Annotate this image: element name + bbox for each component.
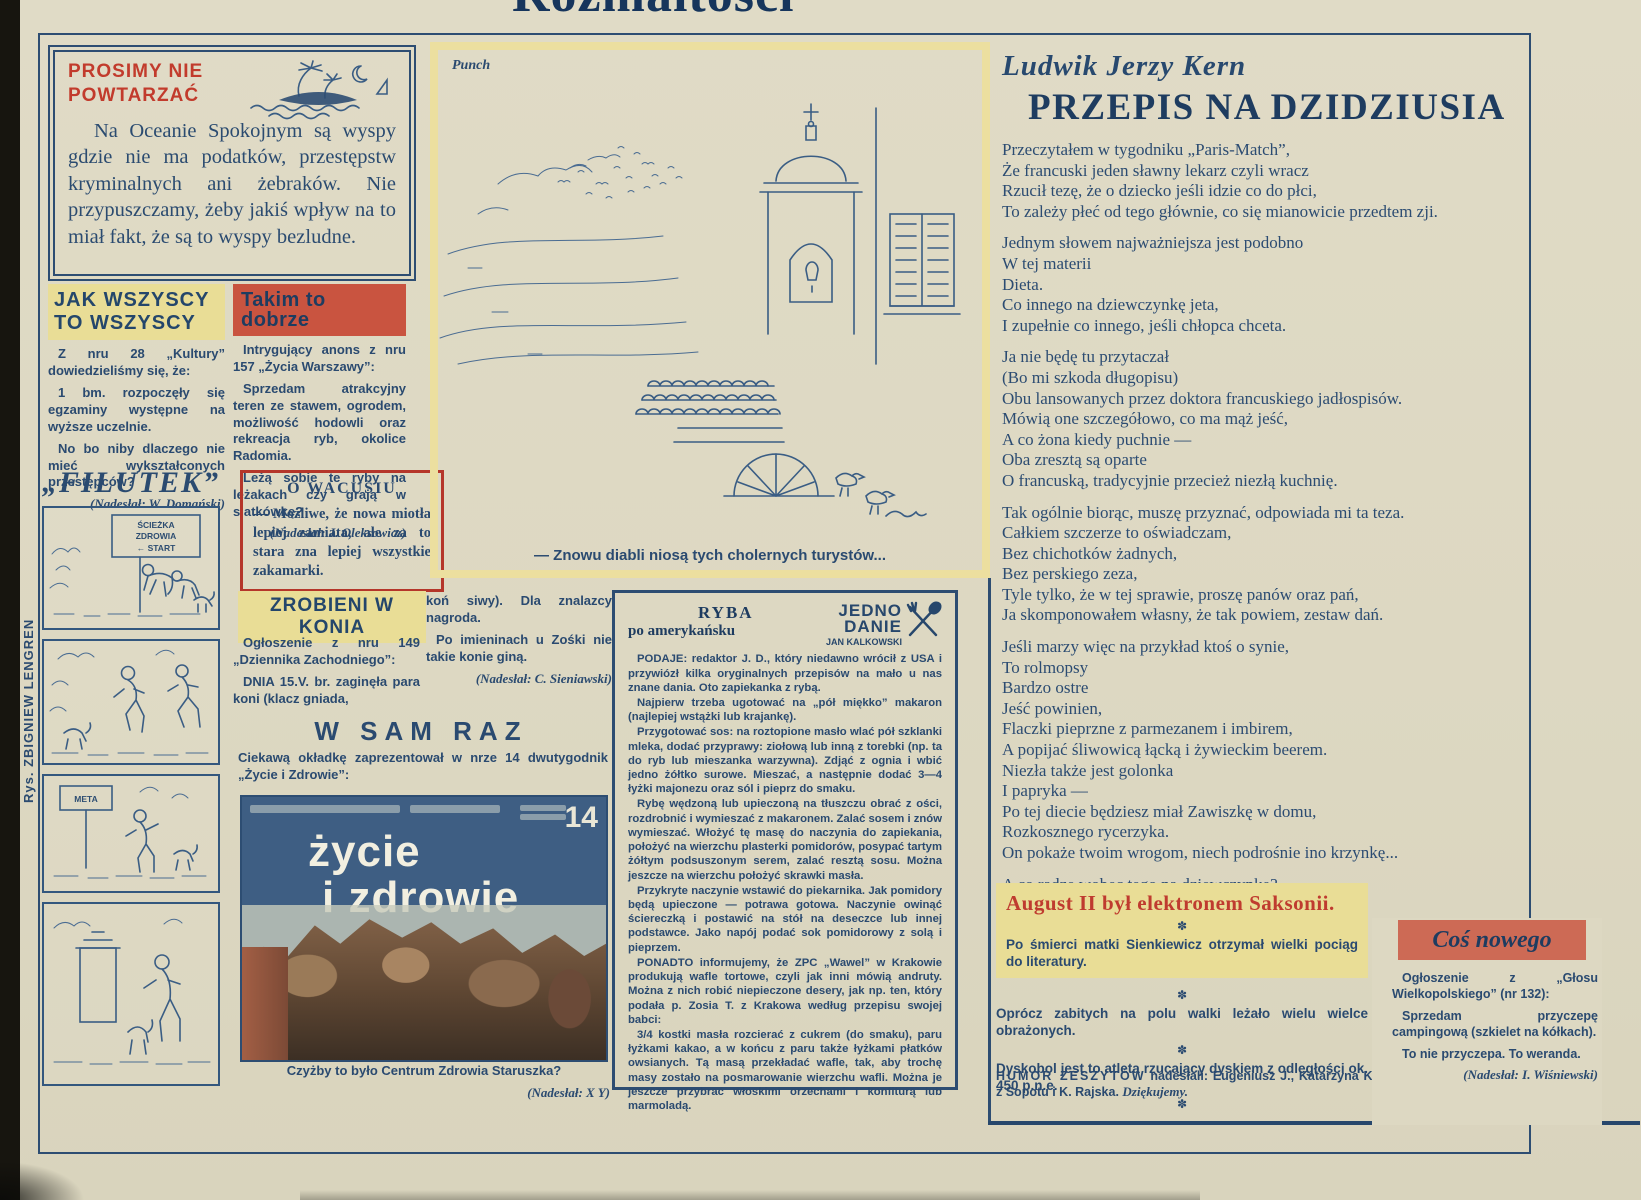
sailboat-icon <box>377 80 387 94</box>
cos-p1: Ogłoszenie z „Głosu Wielkopolskiego” (nr… <box>1392 970 1598 1002</box>
arch-fan-window <box>724 454 834 496</box>
ryba-p7: 3/4 kostki masła rozcierać z cukrem (do … <box>628 1028 942 1113</box>
waves <box>251 106 359 119</box>
comic-panel-1: ŚCIEŻKA ZDROWIA ← START <box>42 506 220 630</box>
poem-stanza-5: Jeśli marzy więc na przykład ktoś o syni… <box>1002 637 1537 864</box>
poem-stanza-4: Tak ogólnie biorąc, muszę przyznać, odpo… <box>1002 503 1537 627</box>
jak-heading: JAK WSZYSCY TO WSZYSCY <box>48 284 225 340</box>
jogger1-body <box>114 680 144 732</box>
zrobieni-c1p1: Ogłoszenie z nru 149 „Dziennika Zachodni… <box>233 635 420 668</box>
humor-item-2: Oprócz zabitych na polu walki leżało wie… <box>996 1005 1368 1040</box>
cos-p2: Sprzedam przyczepę campingową (szkielet … <box>1392 1008 1598 1040</box>
humor-footer-label: HUMOR ZESZYTÓW <box>996 1069 1146 1083</box>
ryba-header: RYBA po amerykańsku JEDNO DANIE JAN KALK… <box>628 603 942 647</box>
pigeons <box>836 473 894 514</box>
poem-title: PRZEPIS NA DZIDZIUSIA <box>1028 89 1537 126</box>
cos-nowego-title: Coś nowego <box>1432 927 1551 954</box>
prosimy-inner-frame: PROSIMY NIE POWTARZAĆ Na Oceanie Spokojn… <box>53 50 411 276</box>
jak-p1: Z nru 28 „Kultury” dowiedzieliśmy się, ż… <box>48 346 225 379</box>
takim-p1: Intrygujący anons z nru 157 „Życia Warsz… <box>233 342 406 375</box>
zrobieni-c2p1: koń siwy). Dla znalazcy nagroda. <box>426 593 612 626</box>
dog-sitting <box>128 1020 153 1054</box>
crossed-cutlery-icon <box>904 601 942 641</box>
bushes <box>50 548 80 588</box>
zrobieni-c2p2: Po imieninach u Zośki nie takie konie gi… <box>426 632 612 665</box>
ryba-p6: PONADTO informujemy, że ZPC „Wawel” w Kr… <box>628 956 942 1027</box>
poem-author: Ludwik Jerzy Kern <box>1002 50 1537 83</box>
bushes <box>140 787 188 798</box>
filutek-title: „FILUTEK” <box>42 468 220 498</box>
comic-panel-4-art <box>44 904 217 1084</box>
wacusiu-title: O WACUSIU <box>253 480 431 498</box>
cos-nowego-text: Ogłoszenie z „Głosu Wielkopolskiego” (nr… <box>1392 970 1598 1083</box>
cover-issue-number: 14 <box>565 801 598 835</box>
ryba-title: RYBA <box>698 603 754 623</box>
ground <box>54 614 200 616</box>
takim-heading: Takim to dobrze <box>233 284 406 336</box>
palm-tree-icon <box>298 61 322 96</box>
masthead-title: Rozmaitości <box>512 0 862 21</box>
humor-yellow-panel: August II był elektronem Saksonii. ✽ Po … <box>996 883 1368 978</box>
cos-p3: To nie przyczepa. To weranda. <box>1392 1046 1598 1062</box>
page-corner-shadow <box>0 1130 210 1200</box>
sign-line2: ZDROWIA <box>136 531 177 541</box>
comic-panel-2 <box>42 639 220 765</box>
section-ryba: RYBA po amerykańsku JEDNO DANIE JAN KALK… <box>612 590 958 1090</box>
comic-panel-3: META <box>42 774 220 893</box>
comic-panel-1-art: ŚCIEŻKA ZDROWIA ← START <box>44 508 217 628</box>
film-edge-strip <box>0 0 20 1200</box>
cover-issue-smudge2 <box>520 814 566 820</box>
section-wacusiu: O WACUSIU — Możliwe, że nowa miotła lepi… <box>240 470 444 592</box>
asterisk-separator: ✽ <box>1006 919 1358 933</box>
zrobieni-col1: Ogłoszenie z nru 149 „Dziennika Zachodni… <box>233 629 420 708</box>
ryba-p3: Przygotować sos: na roztopione masło wla… <box>628 725 942 796</box>
ryba-p1: PODAJE: redaktor J. D., który niedawno w… <box>628 652 942 695</box>
masthead: Rozmaitości <box>512 0 862 30</box>
humor-heading: August II był elektronem Saksonii. <box>1006 891 1358 916</box>
jak-heading-line2: TO WSZYSCY <box>54 312 219 335</box>
desert-island-icon <box>241 58 401 124</box>
logo-line2: DANIE <box>826 619 902 635</box>
cover-header-smudge2 <box>410 805 500 813</box>
cover-credit: (Nadesłał: X Y) <box>330 1085 610 1101</box>
crescent-moon-icon <box>353 66 367 82</box>
wsamraz-heading: W SAM RAZ <box>230 716 612 747</box>
cover-ruins-wall <box>242 947 288 1060</box>
ryba-subtitle: po amerykańsku <box>628 623 754 640</box>
monument-cap <box>76 932 120 948</box>
runner2-body <box>177 580 199 598</box>
sign-line3: ← START <box>137 543 176 553</box>
jogger2-head <box>176 665 188 677</box>
poem-stanza-3: Ja nie będę tu przytaczał(Bo mi szkoda d… <box>1002 347 1537 491</box>
cos-credit: (Nadesłał: I. Wiśniewski) <box>1392 1067 1598 1083</box>
walker-head <box>134 810 146 822</box>
comic-panel-2-art <box>44 641 217 763</box>
humor-footer: HUMOR ZESZYTÓW nadesłali: Eugeniusz J., … <box>996 1068 1376 1100</box>
runner1-body <box>144 573 173 596</box>
cos-nowego-band: Coś nowego <box>1398 920 1586 960</box>
takim-p2: Sprzedam atrakcyjny teren ze stawem, ogr… <box>233 381 406 464</box>
cover-header-smudge <box>250 805 400 813</box>
newspaper-page: Rys. ZBIGNIEW LENGREN Rozmaitości PROSIM… <box>0 0 1641 1200</box>
ryba-p2: Najpierw trzeba ugotować na „pół miękko”… <box>628 696 942 724</box>
magazine-cover: 14 życie i zdrowie <box>240 795 608 1062</box>
jogger2-body <box>168 677 200 727</box>
ryba-p5: Przykryte naczynie wstawić do piekarnika… <box>628 884 942 955</box>
comic-panel-4 <box>42 902 220 1086</box>
bird-flock <box>558 147 682 199</box>
zrobieni-c1p2: DNIA 15.V. br. zaginęła para koni (klacz… <box>233 674 420 707</box>
sign-line1: ŚCIEŻKA <box>137 519 174 530</box>
ryba-titles: RYBA po amerykańsku <box>628 603 754 640</box>
wsamraz-intro: Ciekawą okładkę zaprezentował w nrze 14 … <box>238 750 608 783</box>
ryba-p4: Rybę wędzoną lub upieczoną na tłuszczu o… <box>628 797 942 882</box>
jak-p2: 1 bm. rozpoczęły się egzaminy występne n… <box>48 385 225 435</box>
island-mound <box>279 92 357 105</box>
cover-issue-smudge <box>520 805 566 811</box>
jak-heading-line1: JAK WSZYSCY <box>54 289 219 312</box>
cover-caption: Czyżby to było Centrum Zdrowia Staruszka… <box>238 1063 610 1080</box>
column-divider <box>988 578 991 1123</box>
ground <box>54 1062 210 1064</box>
man-head <box>155 955 169 969</box>
comic-filutek: „FILUTEK” ŚCIEŻKA ZDROWIA ← START <box>42 468 220 1086</box>
meta-sign-label: META <box>74 794 97 804</box>
dog <box>64 723 91 749</box>
zrobieni-col2: koń siwy). Dla znalazcy nagroda. Po imie… <box>426 593 612 687</box>
humor-item-1: Po śmierci matki Sienkiewicz otrzymał wi… <box>1006 936 1358 971</box>
zrobieni-credit: (Nadesłał: C. Sieniawski) <box>426 671 612 687</box>
ground <box>52 753 208 755</box>
logo-author: JAN KALKOWSKI <box>826 637 902 647</box>
poem-stanza-2: Jednym słowem najważniejsza jest podobno… <box>1002 233 1537 336</box>
dog <box>194 592 214 612</box>
prosimy-body: Na Oceanie Spokojnym są wyspy gdzie nie … <box>68 118 396 251</box>
bushes <box>54 919 182 928</box>
page-bottom-shadow <box>300 1190 1200 1200</box>
jogger1-head <box>122 667 135 680</box>
tiled-roof <box>636 381 784 442</box>
artist-signature <box>886 511 926 516</box>
ground <box>54 876 206 878</box>
poem-przepis: Ludwik Jerzy Kern PRZEPIS NA DZIDZIUSIA … <box>1002 50 1537 947</box>
section-prosimy: PROSIMY NIE POWTARZAĆ Na Oceanie Spokojn… <box>48 45 416 281</box>
asterisk-separator: ✽ <box>996 988 1368 1002</box>
monument <box>80 948 116 1022</box>
clouds <box>478 165 592 214</box>
cover-title-line1: życie <box>308 829 519 875</box>
jedno-danie-logo: JEDNO DANIE JAN KALKOWSKI <box>826 603 942 647</box>
bushes <box>50 650 174 711</box>
poem-stanza-1: Przeczytałem w tygodniku „Paris-Match”,Ż… <box>1002 140 1537 222</box>
bell-tower <box>760 104 862 334</box>
building-wall <box>876 108 960 364</box>
walker-body <box>126 822 158 872</box>
punch-caption: — Znowu diabli niosą tych cholernych tur… <box>438 547 982 564</box>
wacusiu-body: — Możliwe, że nowa miotła lepiej zamiata… <box>253 505 431 580</box>
dog <box>174 845 197 870</box>
punch-cartoon-art <box>438 64 982 544</box>
hills <box>440 236 698 364</box>
section-cos-nowego: Coś nowego Ogłoszenie z „Głosu Wielkopol… <box>1372 918 1602 1125</box>
humor-footer-thanks: Dziękujemy. <box>1122 1084 1188 1099</box>
punch-cartoon: Punch <box>430 42 990 578</box>
asterisk-separator: ✽ <box>996 1043 1368 1057</box>
comic-panel-3-art: META <box>44 776 217 891</box>
